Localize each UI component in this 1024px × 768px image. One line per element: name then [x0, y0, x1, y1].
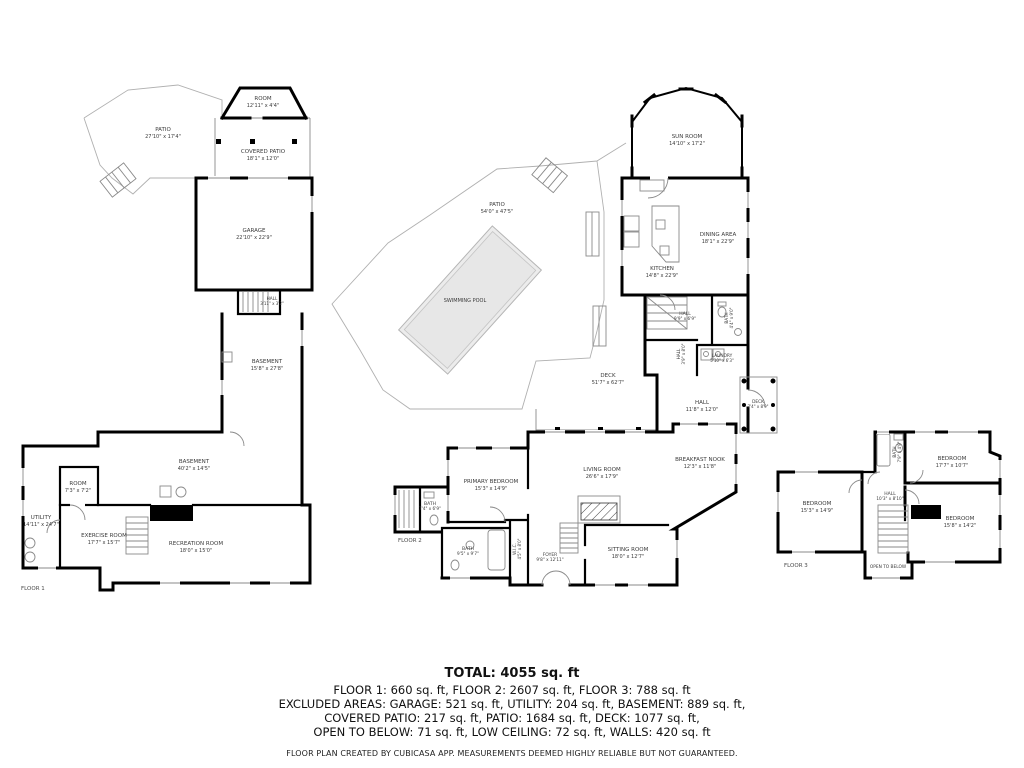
room-label-exercise: EXERCISE ROOM: [81, 533, 127, 539]
room-label-hall-l2: HALL: [695, 400, 710, 406]
room-label-recreation: RECREATION ROOM: [169, 541, 223, 547]
room-dims-utility: 14'11" x 24'7": [23, 522, 59, 528]
floor1-plan: PATIO 27'10" x 17'4" ROOM 12'11" x 4'4" …: [21, 85, 312, 592]
room-dims-patio2: 54'0" x 47'5": [481, 209, 514, 215]
room-dims-hall-u2: 9'9" x 6'9": [674, 316, 696, 321]
room-dims-hall-f1: 3'11" x 3'2": [260, 301, 284, 306]
room-dims-sun-room: 14'10" x 17'2": [669, 141, 705, 147]
kitchen-island: [652, 206, 679, 262]
floor1-label: FLOOR 1: [21, 586, 45, 592]
room-dims-bath-f3: 7'9" x 4'9": [897, 441, 902, 462]
room-label-garage: GARAGE: [242, 228, 266, 234]
room-dims-room-top: 12'11" x 4'4": [247, 103, 280, 109]
room-dims-hall-f3: 10'3" x 8'10": [876, 496, 903, 501]
excluded-areas-text-2: COVERED PATIO: 217 sq. ft, PATIO: 1684 s…: [0, 711, 1024, 725]
room-label-covered-patio: COVERED PATIO: [241, 149, 286, 155]
room-dims-bed-se: 15'8" x 14'2": [944, 523, 977, 529]
room-label-basement-u: BASEMENT: [252, 359, 283, 365]
fixture-icon: [176, 487, 186, 497]
total-area-text: TOTAL: 4055 sq. ft: [0, 666, 1024, 681]
room-dims-basement-u: 15'8" x 27'8": [251, 366, 284, 372]
toilet-icon: [430, 515, 438, 525]
fireplace-icon: [578, 496, 620, 523]
counter: [640, 180, 664, 191]
floor-areas-text: FLOOR 1: 660 sq. ft, FLOOR 2: 2607 sq. f…: [0, 683, 1024, 697]
room-label-living: LIVING ROOM: [583, 467, 621, 473]
room-label-bed-w: BEDROOM: [803, 501, 832, 507]
floor2-label: FLOOR 2: [398, 538, 422, 544]
room-label-bed-ne: BEDROOM: [938, 456, 967, 462]
room-label-bed-se: BEDROOM: [946, 516, 975, 522]
summary-block: TOTAL: 4055 sq. ft FLOOR 1: 660 sq. ft, …: [0, 666, 1024, 758]
room-label-sitting: SITTING ROOM: [608, 547, 649, 553]
room-label-basement-l: BASEMENT: [179, 459, 210, 465]
room-dims-bath-u2: 4'4" x 9'0": [729, 307, 734, 328]
stairs-icon: [878, 505, 908, 553]
room-dims-garage: 22'10" x 22'9": [236, 235, 272, 241]
room-label-utility: UTILITY: [31, 515, 52, 521]
floor3-plan: BEDROOM 15'3" x 14'9" BEDROOM 17'7" x 10…: [778, 432, 1000, 578]
floor2-plan: PATIO 54'0" x 47'5" SWIMMING POOL SUN RO…: [332, 88, 777, 585]
room-dims-laundry: 5'10" x 6'3": [710, 358, 734, 363]
fridge-icon: [624, 216, 639, 231]
room-label-nook: BREAKFAST NOOK: [675, 457, 725, 463]
room-label-patio1: PATIO: [155, 127, 171, 133]
patio-stairs-icon: [532, 158, 568, 193]
water-heater-icon: [25, 538, 35, 548]
floor3-label: FLOOR 3: [784, 563, 808, 569]
room-dims-bed-ne: 17'7" x 10'7": [936, 463, 969, 469]
toilet-icon: [451, 560, 459, 570]
appliance-icon: [624, 232, 639, 247]
room-dims-sitting: 18'0" x 12'7": [612, 554, 645, 560]
room-dims-nook: 12'3" x 11'8": [684, 464, 717, 470]
room-dims-recreation: 18'0" x 15'0": [180, 548, 213, 554]
room-label-room-top: ROOM: [254, 96, 271, 102]
sink-icon: [894, 434, 903, 440]
room-dims-patio1: 27'10" x 17'4": [145, 134, 181, 140]
room-dims-bath-left: 7'4" x 6'9": [419, 506, 441, 511]
water-heater-icon: [25, 552, 35, 562]
room-dims-living: 26'6" x 17'9": [586, 474, 619, 480]
room-dims-deck-sm: 7'4" x 8'9": [748, 404, 769, 409]
room-dims-bed-w: 15'3" x 14'9": [801, 508, 834, 514]
room-dims-dining: 18'1" x 22'9": [702, 239, 735, 245]
sink-icon: [735, 329, 742, 336]
room-dims-hall-m2: 3'9" x 8'0": [681, 343, 686, 364]
room-dims-primary: 15'3" x 14'9": [475, 486, 508, 492]
room-dims-foyer: 9'8" x 12'11": [536, 557, 563, 562]
room-dims-basement-l: 40'2" x 14'5": [178, 466, 211, 472]
room-label-room-small: ROOM: [69, 481, 86, 487]
bathtub-icon: [877, 434, 890, 466]
room-label-dining: DINING AREA: [700, 232, 737, 238]
disclaimer-text: FLOOR PLAN CREATED BY CUBICASA APP. MEAS…: [0, 749, 1024, 758]
excluded-areas-text-3: OPEN TO BELOW: 71 sq. ft, LOW CEILING: 7…: [0, 725, 1024, 739]
room-label-pool: SWIMMING POOL: [444, 298, 487, 304]
room-dims-room-small: 7'3" x 7'2": [65, 488, 91, 494]
fixture-icon: [160, 486, 171, 497]
room-dims-exercise: 17'7" x 15'7": [88, 540, 121, 546]
room-label-deck-lg: DECK: [600, 373, 616, 379]
room-label-sun-room: SUN ROOM: [672, 134, 703, 140]
room-dims-hall-l2: 11'8" x 12'0": [686, 407, 719, 413]
stairs-icon: [560, 523, 578, 553]
closet-icon: [399, 490, 414, 528]
low-ceiling-area: [150, 505, 193, 521]
room-label-kitchen: KITCHEN: [650, 266, 674, 272]
room-dims-kitchen: 14'8" x 22'9": [646, 273, 679, 279]
room-label-patio2: PATIO: [489, 202, 505, 208]
sink-icon: [424, 492, 434, 498]
room-label-open-below: OPEN TO BELOW: [870, 564, 907, 570]
floorplan-canvas: PATIO 27'10" x 17'4" ROOM 12'11" x 4'4" …: [0, 0, 1024, 660]
room-dims-wic: 4'5" x 8'0": [517, 538, 522, 559]
room-dims-deck-lg: 51'7" x 62'7": [592, 380, 625, 386]
room-label-primary: PRIMARY BEDROOM: [464, 479, 519, 485]
room-dims-covered-patio: 18'1" x 12'0": [247, 156, 280, 162]
bathtub-icon: [488, 530, 505, 570]
excluded-areas-text-1: EXCLUDED AREAS: GARAGE: 521 sq. ft, UTIL…: [0, 697, 1024, 711]
low-ceiling-area: [911, 505, 941, 519]
room-dims-bath-low: 9'5" x 9'7": [457, 551, 479, 556]
